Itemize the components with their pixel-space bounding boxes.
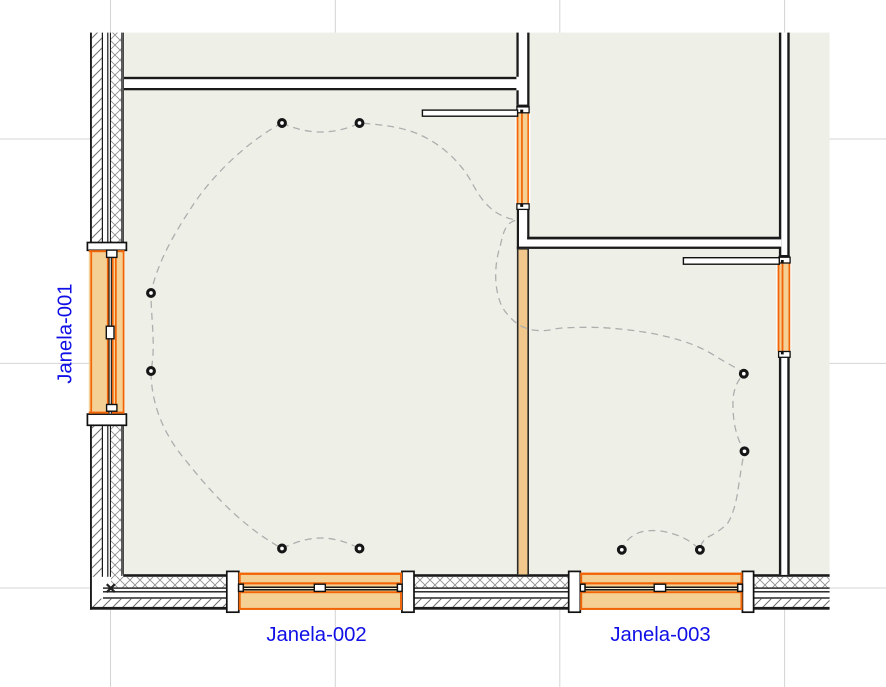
svg-text:Janela-002: Janela-002 bbox=[266, 624, 366, 646]
svg-text:Janela-001: Janela-001 bbox=[55, 283, 77, 383]
svg-text:Janela-003: Janela-003 bbox=[610, 624, 710, 646]
